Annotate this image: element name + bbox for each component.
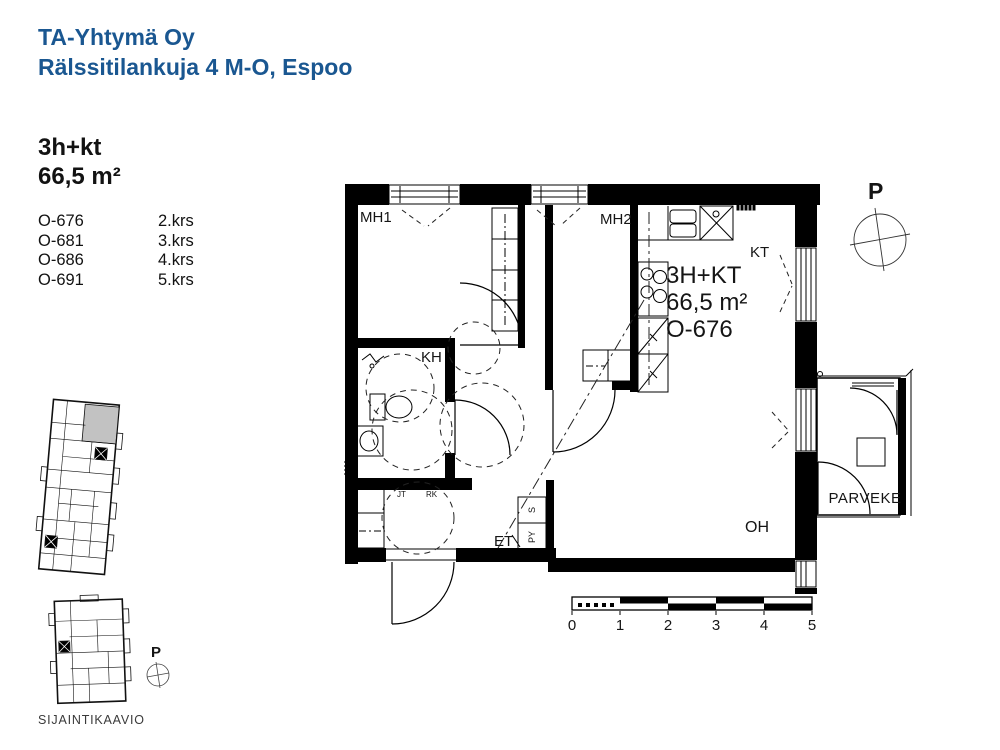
unit-row: O-681 3.krs [38,232,194,252]
scale-tick-0: 0 [568,617,576,634]
scale-tick-5: 5 [808,617,816,634]
hatch-marks [344,187,817,474]
scale-tick-4: 4 [760,617,768,634]
walls [345,184,906,594]
label-rk: RK [426,490,438,499]
scale-tick-2: 2 [664,617,672,634]
unit-area-text: 66,5 m² [666,289,747,316]
room-label-parveke: PARVEKE [829,490,902,507]
unit-floor: 2.krs [158,212,194,232]
unit-row: O-686 4.krs [38,251,194,271]
unit-row: O-676 2.krs [38,212,194,232]
fixtures [355,206,733,549]
scale-tick-1: 1 [616,617,624,634]
unit-id: O-691 [38,271,158,291]
north-arrow: P [850,178,910,271]
address-line: Rälssitilankuja 4 M-O, Espoo [38,52,352,82]
unit-floor: 5.krs [158,271,194,291]
apartment-type: 3h+kt [38,133,121,162]
unit-id-text: O-676 [666,316,733,343]
floor-plan: MH1 MH2 KT KH OH ET PARVEKE S PY JT RK 3… [330,165,950,650]
apartment-area: 66,5 m² [38,162,121,191]
scale-tick-3: 3 [712,617,720,634]
north-label: P [868,178,883,204]
room-label-kh: KH [421,349,442,366]
unit-floor-list: O-676 2.krs O-681 3.krs O-686 4.krs O-69… [38,212,194,290]
unit-row: O-691 5.krs [38,271,194,291]
location-north-arrow: P [147,644,169,688]
unit-id: O-676 [38,212,158,232]
closet-label-py: PY [527,531,537,543]
location-north-label: P [151,644,161,661]
location-caption: SIJAINTIKAAVIO [38,713,145,727]
apartment-summary: 3h+kt 66,5 m² [38,133,121,191]
room-label-et: ET [494,533,513,550]
unit-floor: 3.krs [158,232,194,252]
doors [392,283,615,624]
highlighted-unit [82,404,119,444]
room-label-kt: KT [750,244,769,261]
dashed-guides [366,208,792,554]
document-header: TA-Yhtymä Oy Rälssitilankuja 4 M-O, Espo… [38,22,352,82]
closet-label-s: S [527,507,537,513]
location-diagram-upper [33,399,126,575]
location-diagram-lower [48,594,132,704]
floor-plan-page: TA-Yhtymä Oy Rälssitilankuja 4 M-O, Espo… [0,0,1000,750]
location-diagrams: P [25,388,220,706]
company-name: TA-Yhtymä Oy [38,22,352,52]
label-jt: JT [397,490,406,499]
room-label-oh: OH [745,519,769,536]
unit-id: O-681 [38,232,158,252]
unit-type-text: 3H+KT [666,262,742,289]
scale-bar: 0 1 2 3 4 5 [568,597,816,634]
room-label-mh1: MH1 [360,209,392,226]
room-label-mh2: MH2 [600,211,632,228]
unit-floor: 4.krs [158,251,194,271]
unit-id: O-686 [38,251,158,271]
